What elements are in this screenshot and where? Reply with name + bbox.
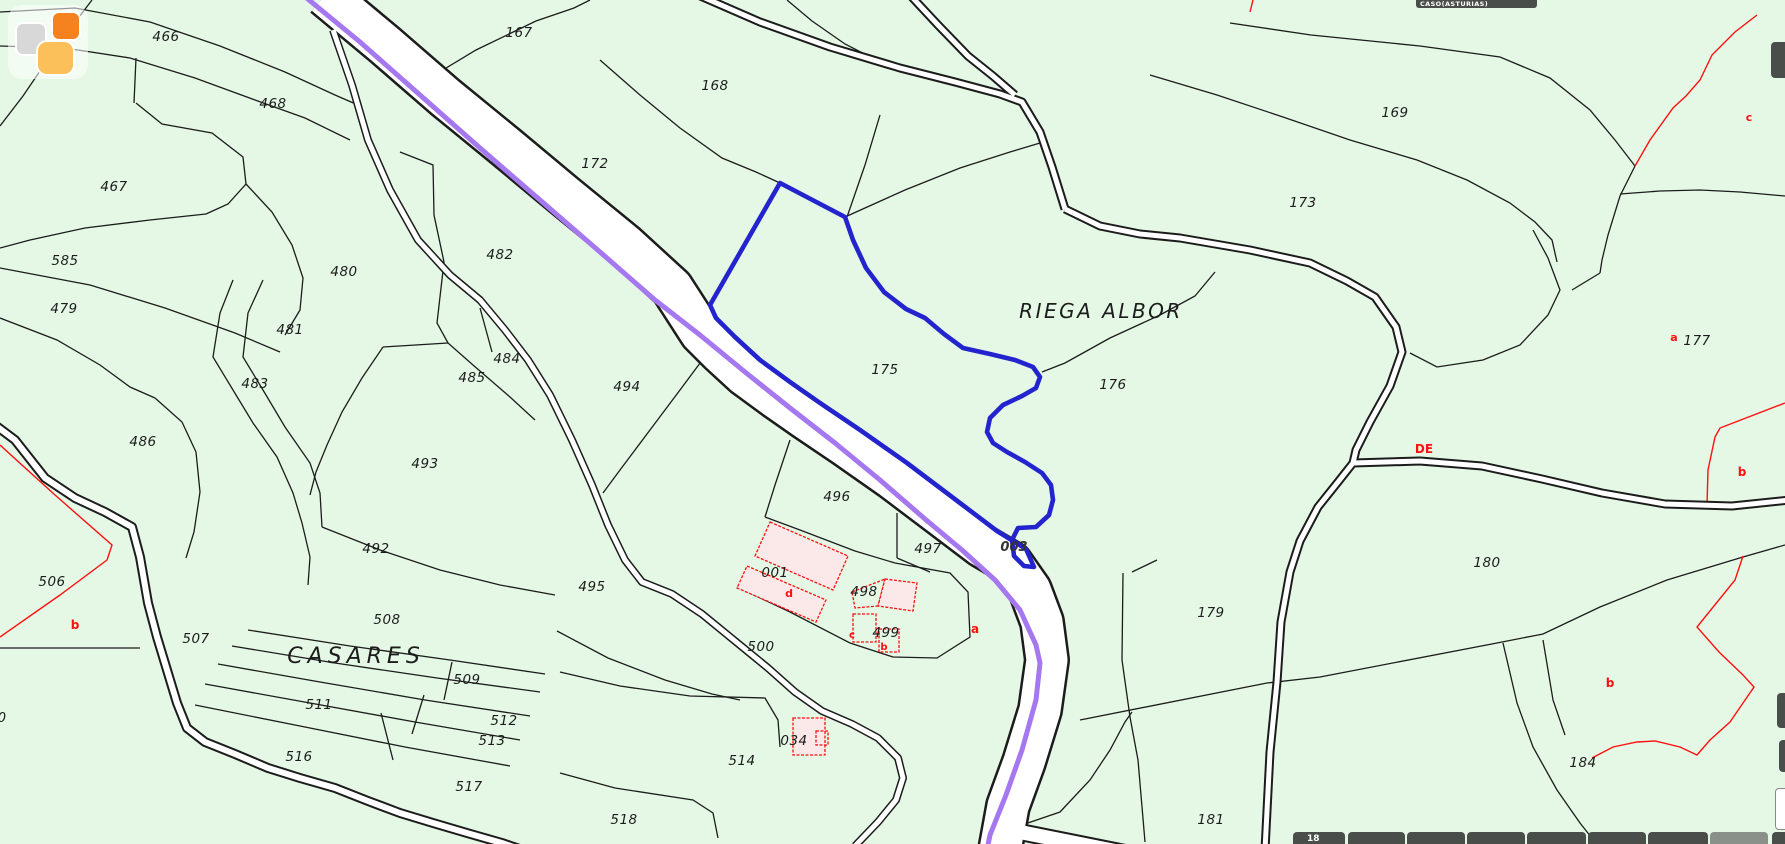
parcel-label-513: 513 xyxy=(478,733,505,749)
subparcel-letter-c-8: c xyxy=(849,630,855,641)
parcel-label-507: 507 xyxy=(182,631,209,647)
parcel-label-517: 517 xyxy=(455,779,482,795)
map-background xyxy=(0,0,1785,844)
toolbar-button-4[interactable] xyxy=(1527,832,1586,844)
parcel-label-512: 512 xyxy=(490,713,517,729)
parcel-label-479: 479 xyxy=(50,301,77,317)
parcel-label-500: 500 xyxy=(747,639,774,655)
edge-tab-2[interactable] xyxy=(1779,740,1785,772)
toolbar-button-8[interactable] xyxy=(1772,832,1785,844)
logo-orange-square xyxy=(53,13,79,39)
toolbar-button-3[interactable] xyxy=(1467,832,1525,844)
parcel-label-506: 506 xyxy=(38,574,65,590)
parcel-label-177: 177 xyxy=(1683,333,1710,349)
parcel-label-516: 516 xyxy=(285,749,312,765)
subparcel-letter-c-0: c xyxy=(1746,111,1753,124)
toolbar-button-0[interactable]: 18 xyxy=(1293,832,1345,844)
parcel-label-180: 180 xyxy=(1473,555,1500,571)
parcel-label-179: 179 xyxy=(1197,605,1224,621)
parcel-label-0: 0 xyxy=(0,710,7,726)
subparcel-letter-b-4: b xyxy=(1606,676,1615,690)
parcel-label-494: 494 xyxy=(613,379,640,395)
road-label-003: 003 xyxy=(1000,540,1027,555)
toolbar-button-6[interactable] xyxy=(1648,832,1708,844)
subparcel-letter-b-3: b xyxy=(1738,465,1747,479)
edge-tab-1[interactable] xyxy=(1777,693,1785,728)
logo-amber-square xyxy=(38,42,73,74)
parcel-label-168: 168 xyxy=(701,78,728,94)
parcel-label-181: 181 xyxy=(1197,812,1224,828)
subparcel-letter-a-1: a xyxy=(1670,331,1677,344)
building-3 xyxy=(878,579,917,611)
parcel-label-585: 585 xyxy=(51,253,78,269)
toolbar-button-2[interactable] xyxy=(1407,832,1465,844)
subparcel-letter-b-9: b xyxy=(880,642,887,653)
subparcel-letter-d-7: d xyxy=(785,587,793,600)
parcel-label-167: 167 xyxy=(505,25,532,41)
catastro-map-viewer: 0034664684675851671721681691734794804824… xyxy=(0,0,1785,844)
parcel-label-483: 483 xyxy=(241,376,268,392)
parcel-label-518: 518 xyxy=(610,812,637,828)
parcel-label-467: 467 xyxy=(100,179,127,195)
parcel-label-497: 497 xyxy=(914,541,941,557)
parcel-label-001: 001 xyxy=(761,565,788,581)
parcel-label-184: 184 xyxy=(1569,755,1596,771)
place-name-riega-albor: RIEGA ALBOR xyxy=(1019,299,1183,323)
parcel-label-514: 514 xyxy=(728,753,755,769)
parcel-label-468: 468 xyxy=(259,96,286,112)
parcel-label-482: 482 xyxy=(486,247,513,263)
parcel-label-176: 176 xyxy=(1099,377,1126,393)
parcel-label-034: 034 xyxy=(780,733,807,749)
parcel-label-466: 466 xyxy=(152,29,179,45)
parcel-label-173: 173 xyxy=(1289,195,1316,211)
parcel-label-509: 509 xyxy=(453,672,480,688)
toolbar-button-1[interactable] xyxy=(1348,832,1405,844)
parcel-label-485: 485 xyxy=(458,370,485,386)
parcel-label-495: 495 xyxy=(578,579,605,595)
parcel-label-496: 496 xyxy=(823,489,850,505)
subparcel-letter-DE-2: DE xyxy=(1415,442,1433,456)
subparcel-letter-a-6: a xyxy=(971,622,979,636)
toolbar-button-5[interactable] xyxy=(1588,832,1646,844)
parcel-label-499: 499 xyxy=(872,625,899,641)
parcel-label-511: 511 xyxy=(305,697,332,713)
parcel-label-493: 493 xyxy=(411,456,438,472)
parcel-label-480: 480 xyxy=(330,264,357,280)
place-name-casares: CASARES xyxy=(287,644,425,669)
municipality-titlebar: CASO(ASTURIAS) xyxy=(1416,0,1537,8)
parcel-label-172: 172 xyxy=(581,156,608,172)
edge-tab-3[interactable] xyxy=(1775,788,1785,830)
parcel-label-484: 484 xyxy=(493,351,520,367)
edge-tab-0[interactable] xyxy=(1771,42,1785,78)
map-canvas[interactable]: 0034664684675851671721681691734794804824… xyxy=(0,0,1785,844)
parcel-label-175: 175 xyxy=(871,362,898,378)
parcel-label-508: 508 xyxy=(373,612,400,628)
toolbar-button-7[interactable] xyxy=(1710,832,1768,844)
catastro-logo-icon[interactable] xyxy=(8,5,92,83)
toolbar-button-label: 18 xyxy=(1307,834,1345,844)
parcel-label-486: 486 xyxy=(129,434,156,450)
parcel-label-169: 169 xyxy=(1381,105,1408,121)
municipality-name: CASO(ASTURIAS) xyxy=(1420,0,1488,8)
parcel-label-492: 492 xyxy=(362,541,389,557)
subparcel-letter-b-5: b xyxy=(71,618,80,632)
parcel-label-498: 498 xyxy=(850,584,877,600)
parcel-label-481: 481 xyxy=(276,322,303,338)
